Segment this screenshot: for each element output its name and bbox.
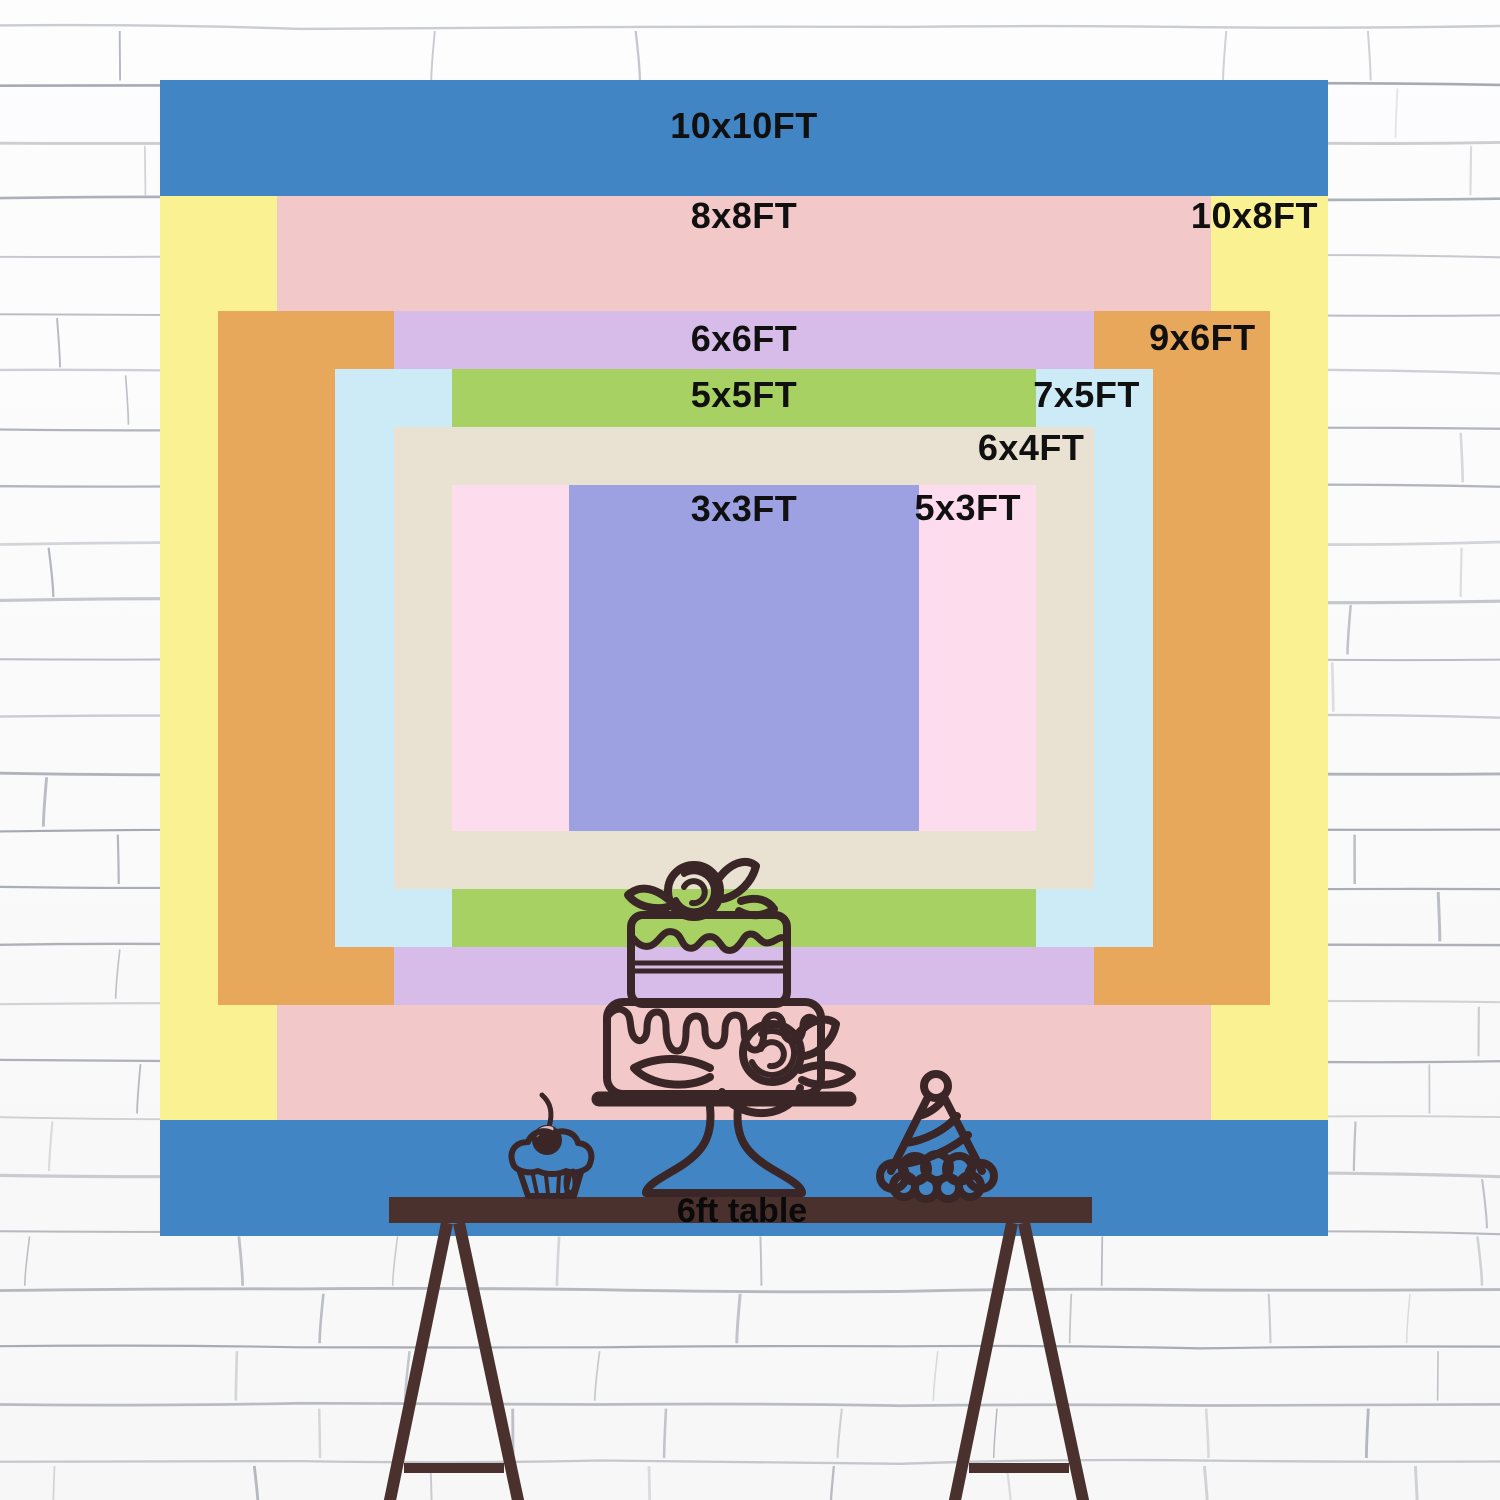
backdrop-size-chart: 10x10FT10x8FT8x8FT9x6FT6x6FT7x5FT5x5FT6x… bbox=[0, 0, 1500, 1500]
cupcake-icon bbox=[512, 1095, 592, 1196]
party-hat-icon bbox=[880, 1074, 994, 1199]
table-legs-right bbox=[954, 1223, 1084, 1500]
table-label: 6ft table bbox=[0, 1192, 1484, 1230]
line-art-layer bbox=[0, 0, 1500, 1500]
birthday-cake-icon bbox=[599, 862, 852, 1193]
table-legs-left bbox=[389, 1223, 519, 1500]
